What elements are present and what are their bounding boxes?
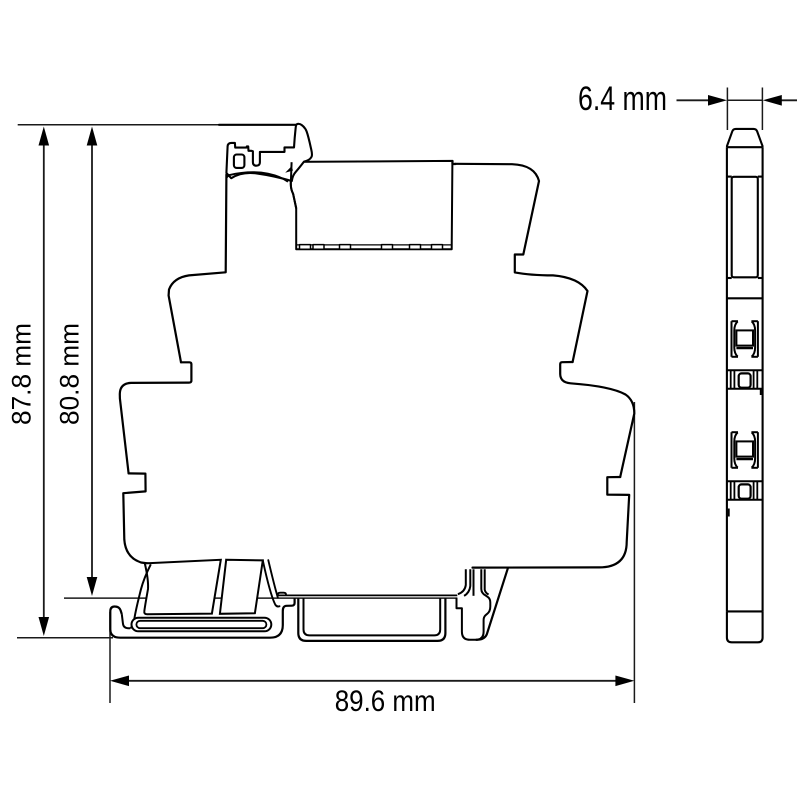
svg-text:87.8 mm: 87.8 mm	[7, 323, 37, 425]
svg-text:89.6 mm: 89.6 mm	[335, 685, 436, 718]
svg-text:6.4 mm: 6.4 mm	[578, 80, 667, 118]
svg-text:80.8 mm: 80.8 mm	[55, 323, 85, 425]
